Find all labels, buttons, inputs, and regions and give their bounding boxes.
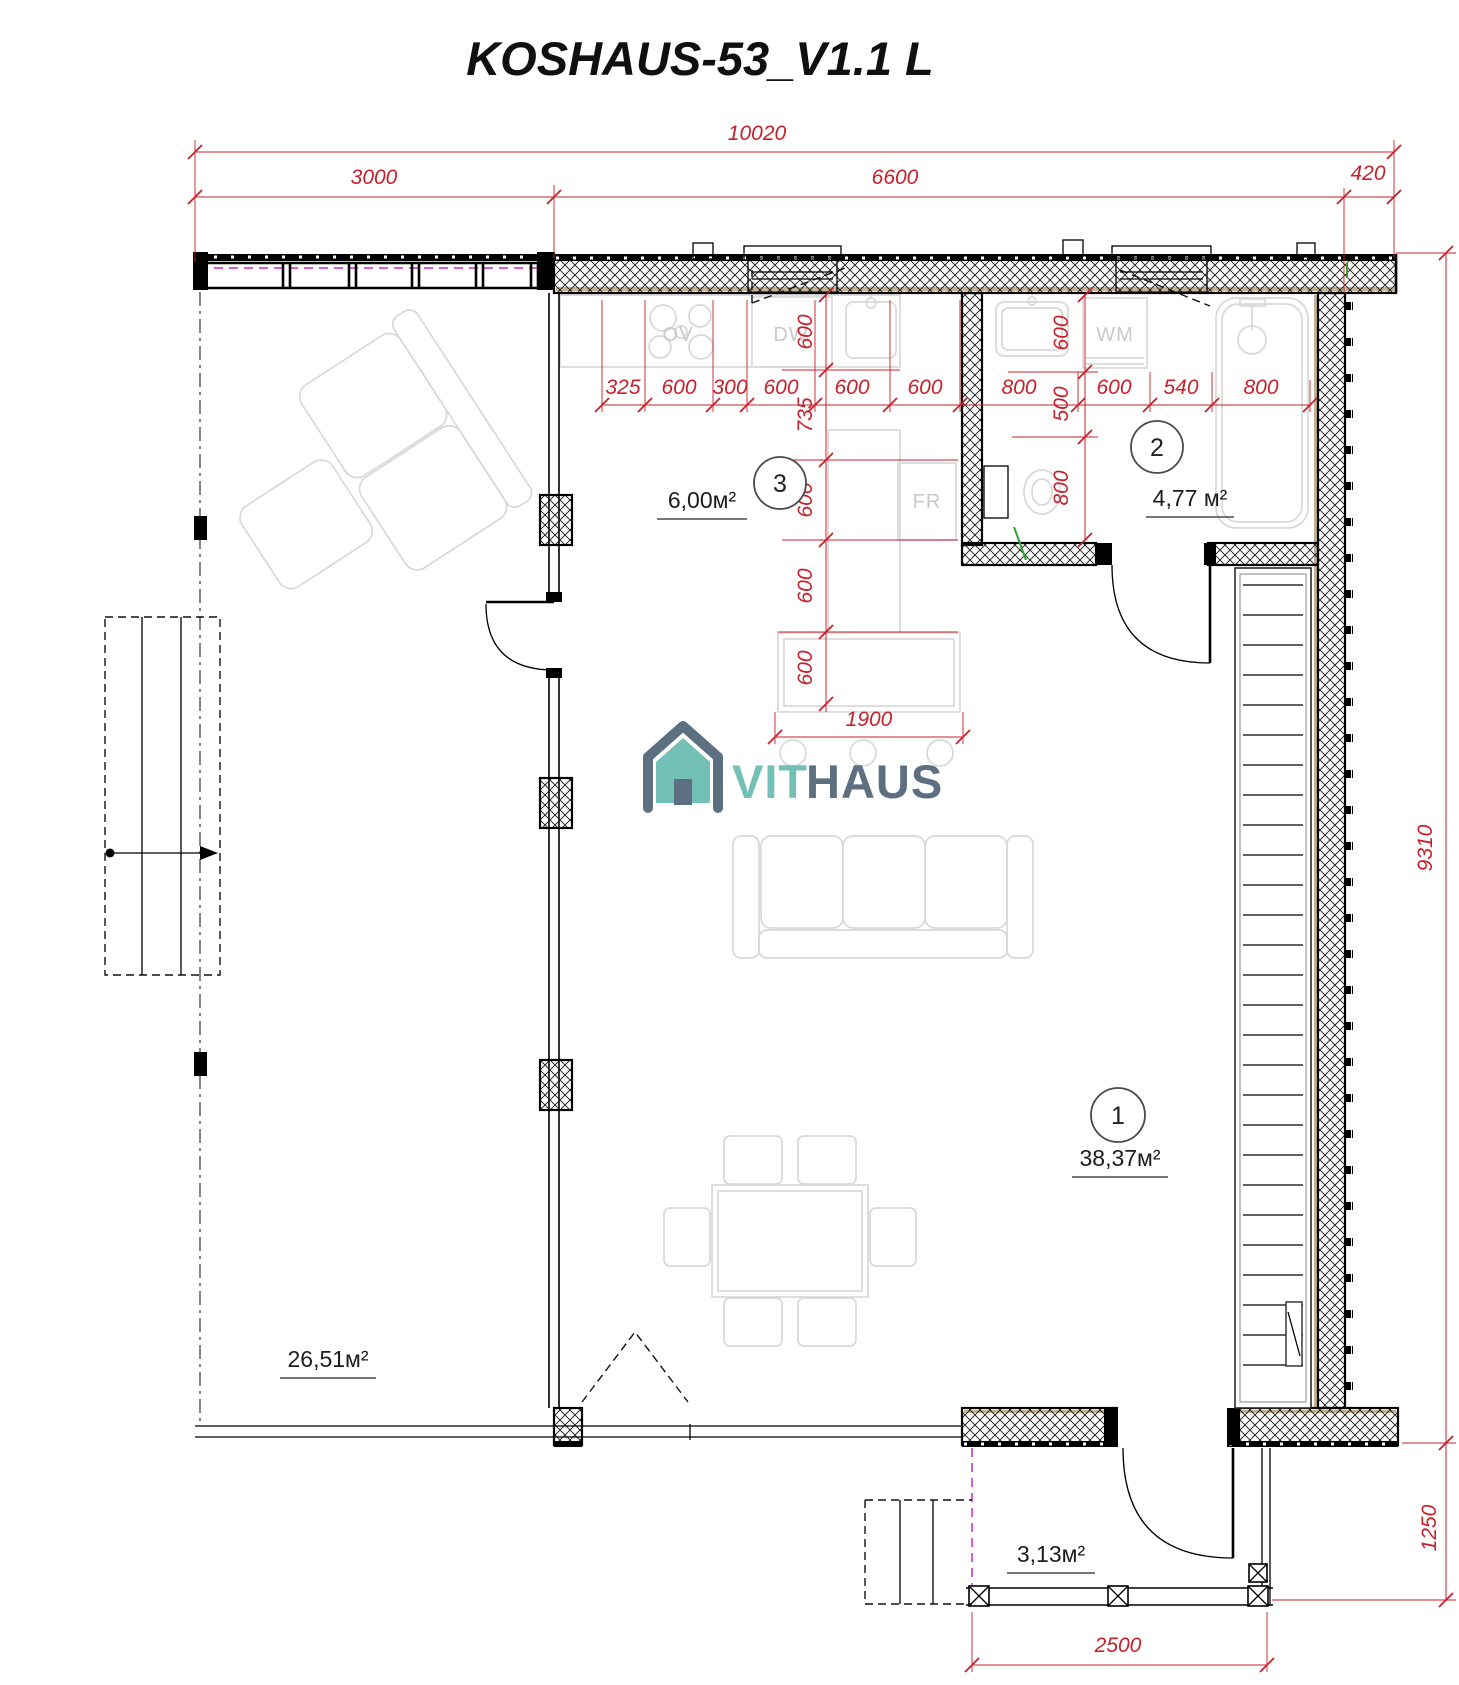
room-3-number: 3	[773, 470, 787, 498]
porch-steps	[865, 1500, 972, 1604]
dim-porch-height: 1250	[1418, 1504, 1441, 1551]
vithaus-logo: VIT HAUS	[648, 726, 943, 808]
dim-kv-0: 600	[794, 314, 817, 349]
dim-top-0: 3000	[351, 166, 398, 189]
dim-chain-7: 600	[1096, 376, 1131, 399]
dim-kv-1: 735	[794, 397, 817, 432]
fridge-label: FR	[913, 491, 942, 513]
kitchen-area-label: 6,00м²	[668, 487, 737, 513]
kitchen-fixtures: OV DW FR	[560, 286, 960, 766]
dim-top-2: 420	[1350, 162, 1385, 185]
dim-chain-2: 300	[712, 376, 747, 399]
room-2-number: 2	[1150, 434, 1164, 462]
dim-east-height: 9310	[1414, 824, 1437, 871]
windows	[195, 240, 1315, 1440]
dim-kv-3: 600	[794, 568, 817, 603]
bathroom-area-label: 4,77 м²	[1153, 485, 1228, 511]
dim-chain-9: 800	[1243, 376, 1278, 399]
living-area-label: 38,37м²	[1079, 1145, 1160, 1171]
doors	[486, 543, 1239, 1558]
logo-text-haus: HAUS	[806, 755, 943, 808]
living-room-furniture	[664, 836, 1033, 1346]
room-labels: 3 6,00м² 2 4,77 м² 1 38,37м² 26,51м² 3,1…	[280, 421, 1234, 1573]
left-steps	[105, 617, 220, 975]
porch-area-label: 3,13м²	[1017, 1541, 1086, 1567]
closet	[1235, 568, 1311, 1408]
oven-label: OV	[663, 324, 694, 346]
dim-bv-0: 600	[1050, 315, 1073, 350]
dim-porch-width: 2500	[1094, 1634, 1142, 1657]
terrace-furniture	[235, 306, 536, 594]
dim-island: 1900	[846, 708, 893, 731]
floorplan-drawing: KOSHAUS-53_V1.1 L OV DW FR	[0, 0, 1459, 1685]
dim-chain-1: 600	[661, 376, 696, 399]
dim-chain-6: 800	[1001, 376, 1036, 399]
terrace-area-label: 26,51м²	[287, 1346, 368, 1372]
dim-overall: 10020	[728, 122, 787, 145]
dim-top-1: 6600	[872, 166, 919, 189]
porch	[865, 1448, 1273, 1606]
bathroom-fixtures: WM	[984, 286, 1308, 528]
floorplan-page: KOSHAUS-53_V1.1 L OV DW FR	[0, 0, 1459, 1685]
bathroom-door	[1112, 543, 1216, 663]
logo-text-vit: VIT	[732, 755, 808, 808]
dim-bv-2: 800	[1050, 470, 1073, 505]
dim-chain-5: 600	[907, 376, 942, 399]
drawing-title: KOSHAUS-53_V1.1 L	[466, 32, 934, 85]
washing-machine-label: WM	[1096, 324, 1134, 346]
dim-chain-3: 600	[763, 376, 798, 399]
dim-chain-8: 540	[1163, 376, 1198, 399]
entrance-door	[1104, 1408, 1239, 1558]
dim-kv-4: 600	[794, 650, 817, 685]
terrace-door	[486, 592, 566, 678]
dim-bv-1: 500	[1050, 386, 1073, 421]
house-icon	[648, 726, 718, 808]
terrace	[193, 252, 555, 1426]
dim-chain-4: 600	[834, 376, 869, 399]
dim-chain-0: 325	[605, 376, 640, 399]
room-1-number: 1	[1111, 1102, 1125, 1130]
porch-posts	[969, 1564, 1268, 1606]
